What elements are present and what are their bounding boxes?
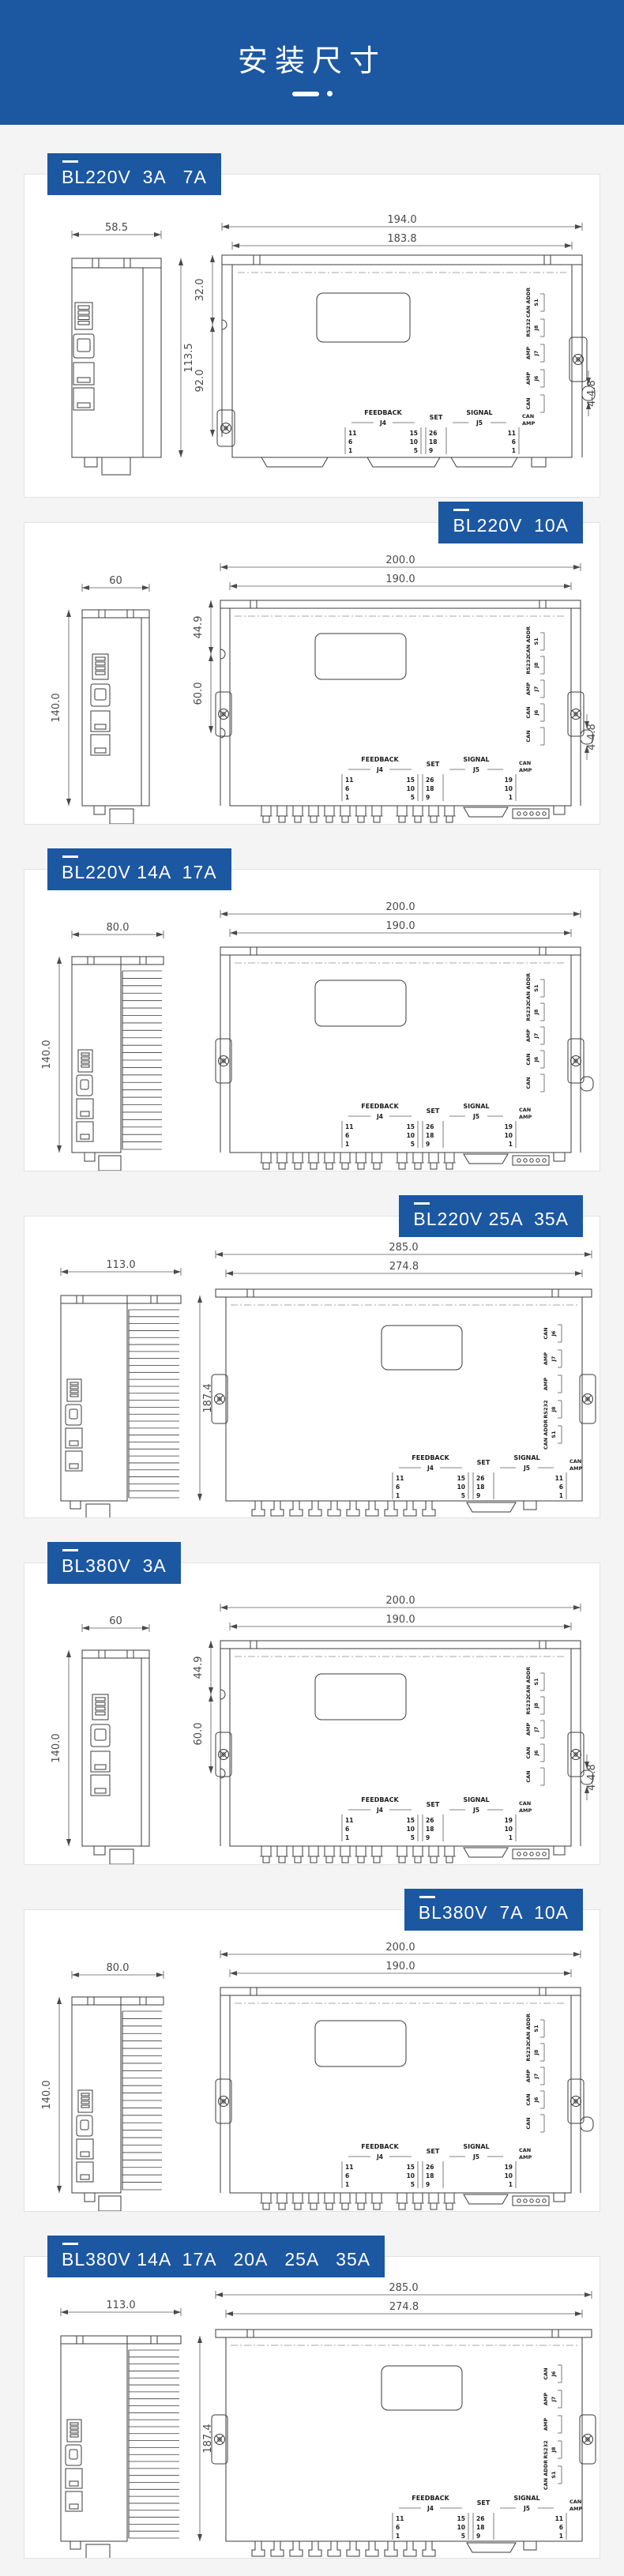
pin-number: 11: [396, 2515, 404, 2522]
port-label: RS232: [525, 1002, 532, 1021]
pin-number: 6: [345, 2172, 349, 2179]
j5-label: J5: [472, 1807, 479, 1814]
product-section-3: BL220V 14A 17A80.0140.0200.0190.0CAN ADD…: [24, 848, 600, 1171]
dim-value: 60.0: [193, 683, 205, 705]
connector-port-icon: [66, 2445, 81, 2465]
pin-number: 11: [348, 430, 356, 437]
j4-label: J4: [427, 1465, 434, 1472]
title-underline: [0, 91, 624, 96]
set-label: SET: [427, 1801, 440, 1808]
screw-icon: [571, 709, 581, 720]
pin-number: 15: [407, 1817, 415, 1824]
dim-value: 200.0: [385, 1942, 415, 1954]
section-label-text: BL220V 10A: [453, 515, 569, 536]
pin-number: 1: [509, 794, 513, 801]
dsub-connector-icon: [464, 2194, 508, 2204]
amp-label: AMP: [522, 420, 535, 427]
port-label: J8: [551, 1406, 557, 1412]
technical-drawing: 113.0187.4285.0274.8CANJ6AMPJ7AMPRS232J8…: [24, 2257, 600, 2558]
section-label-text: BL220V 3A 7A: [62, 167, 207, 187]
product-section-5: BL380V 3A60140.0200.0190.044.960.04-4.8C…: [24, 1542, 600, 1865]
port-label: S1: [533, 1678, 539, 1686]
port-label: CAN ADDR: [525, 2014, 532, 2044]
port-label: CAN ADDR: [525, 626, 532, 656]
dim-vertical: 60.0: [193, 654, 213, 733]
pin-number: 11: [345, 2164, 353, 2171]
dim-value: 190.0: [385, 1614, 415, 1626]
can-label: CAN: [519, 1107, 531, 1113]
pin-number: 9: [476, 1492, 480, 1499]
port-label: CAN: [525, 397, 532, 409]
pin-number: 11: [555, 1475, 563, 1482]
port-label: J6: [533, 375, 539, 382]
pin-number: 10: [457, 2524, 465, 2531]
set-label: SET: [477, 2499, 491, 2506]
rj45-port-icon: [91, 735, 110, 755]
j4-label: J4: [376, 2153, 383, 2160]
dim-value: 190.0: [385, 920, 415, 932]
sections-container: BL220V 3A 7A58.5113.5194.0183.832.092.04…: [0, 153, 624, 2559]
pin-number: 1: [509, 1141, 513, 1148]
drawing-card: 58.5113.5194.0183.832.092.04-4.8CAN ADDR…: [24, 174, 600, 498]
drawing-card: 60140.0200.0190.044.960.04-4.8CAN ADDRS1…: [24, 1563, 600, 1865]
port-label: RS232: [525, 318, 532, 337]
connector-port-icon: [77, 1075, 92, 1096]
dip-switch-icon: [78, 1050, 92, 1072]
pin-number: 1: [345, 794, 349, 801]
dim-value: 60.0: [193, 1723, 205, 1746]
signal-label: SIGNAL: [463, 756, 489, 763]
rj45-port-icon: [91, 1751, 110, 1772]
screw-icon: [571, 1750, 581, 1760]
j4-label: J4: [376, 766, 383, 773]
label-dash-icon: [62, 160, 78, 163]
drawing-card: 113.0187.4285.0274.8CANJ6AMPJ7AMPRS232J8…: [24, 1216, 600, 1518]
port-label: AMP: [543, 1352, 549, 1365]
j4-label: J4: [379, 419, 386, 427]
pin-number: 1: [559, 2533, 563, 2540]
pin-number: 11: [345, 1817, 353, 1824]
pin-number: 6: [345, 1132, 349, 1139]
title-underline-dash-icon: [292, 92, 319, 96]
port-label: S1: [551, 2471, 557, 2479]
port-labels: CAN ADDRS1RS232J8AMPJ7CANJ6CAN: [525, 626, 544, 745]
dim-horizontal: 80.0: [72, 1962, 164, 1979]
port-label: S1: [533, 2025, 539, 2033]
port-label: J7: [533, 351, 539, 357]
port-label: CAN: [543, 2367, 549, 2379]
feedback-label: FEEDBACK: [361, 2143, 399, 2150]
pin-number: 18: [426, 785, 434, 792]
dim-value: 285.0: [389, 2282, 418, 2294]
dim-value: 194.0: [387, 214, 416, 226]
pin-number: 10: [505, 785, 513, 792]
port-label: J7: [533, 1727, 539, 1733]
port-label: RS232: [525, 2043, 532, 2061]
pin-number: 26: [476, 2515, 484, 2522]
dim-value: 140.0: [51, 693, 62, 722]
dim-vertical: 92.0: [194, 325, 215, 437]
dim-horizontal: 190.0: [230, 573, 571, 590]
dip-switch-icon: [67, 1379, 81, 1401]
pin-number: 26: [426, 777, 434, 784]
pin-number: 1: [396, 1492, 400, 1499]
feedback-label: FEEDBACK: [361, 1796, 399, 1803]
pin-number: 6: [512, 438, 516, 446]
dim-value: 187.4: [202, 1383, 214, 1412]
port-label: CAN ADDR: [543, 1420, 549, 1450]
dim-value: 4-4.8: [586, 1764, 598, 1791]
pin-number: 1: [509, 1834, 513, 1841]
pin-number: 6: [559, 2524, 563, 2531]
amp-label: AMP: [569, 1465, 582, 1472]
port-label: CAN: [525, 706, 532, 718]
dip-switch-icon: [92, 654, 108, 679]
connector-port-icon: [91, 1724, 110, 1747]
port-labels: CANJ6AMPJ7AMPRS232J8CAN ADDRS1: [543, 1325, 562, 1450]
j4-label: J4: [376, 1113, 383, 1120]
technical-drawing: 58.5113.5194.0183.832.092.04-4.8CAN ADDR…: [24, 175, 600, 497]
port-label: J6: [551, 1330, 557, 1337]
dim-horizontal: 285.0: [216, 1242, 592, 1258]
dim-horizontal: 200.0: [220, 1942, 581, 1958]
screw-icon: [215, 1394, 225, 1405]
port-label: AMP: [525, 347, 532, 359]
dsub-connector-icon: [261, 457, 328, 467]
section-label: BL380V 14A 17A 20A 25A 35A: [47, 2236, 385, 2277]
dim-horizontal: 190.0: [230, 920, 571, 937]
connector-port-icon: [73, 334, 94, 358]
dim-value: 183.8: [387, 233, 416, 245]
amp-label: AMP: [519, 767, 532, 773]
section-label: BL220V 10A: [438, 502, 583, 543]
dim-value: 285.0: [389, 1242, 418, 1254]
dim-horizontal: 285.0: [216, 2282, 592, 2299]
signal-label: SIGNAL: [463, 1103, 489, 1110]
dim-value: 113.0: [106, 2300, 135, 2311]
pin-number: 6: [345, 1826, 349, 1833]
port-label: CAN: [525, 1747, 532, 1758]
rj45-port-icon: [77, 1099, 93, 1119]
dim-horizontal: 113.0: [61, 2300, 181, 2316]
connector-strip-icon: [513, 1156, 549, 1165]
port-label: CAN: [525, 730, 532, 742]
dim-value: 140.0: [41, 2080, 53, 2109]
label-dash-icon: [453, 509, 469, 511]
port-label: J7: [533, 686, 539, 693]
can-label: CAN: [569, 1458, 581, 1465]
pin-number: 18: [476, 1484, 484, 1491]
connector-pin-table: FEEDBACKJ4111561015SET26189SIGNALJ519101…: [342, 756, 532, 801]
connector-port-icon: [77, 2115, 92, 2136]
pin-number: 18: [429, 438, 437, 446]
dim-horizontal: 274.8: [226, 2301, 582, 2318]
pin-number: 18: [476, 2524, 484, 2531]
dim-value: 92.0: [194, 370, 206, 393]
technical-drawing: 60140.0200.0190.044.960.04-4.8CAN ADDRS1…: [24, 523, 600, 824]
heatsink-fins-icon: [129, 2350, 179, 2538]
screw-icon: [215, 2435, 225, 2445]
pin-number: 15: [407, 777, 415, 784]
terminal-block-icon: [396, 1846, 456, 1863]
amp-label: AMP: [519, 1114, 532, 1120]
pin-number: 1: [345, 2181, 349, 2188]
dim-horizontal: 80.0: [72, 922, 164, 938]
dip-switch-icon: [78, 2090, 92, 2112]
dim-value: 274.8: [389, 2301, 419, 2313]
amp-label: AMP: [519, 2154, 532, 2160]
dim-vertical: 44.9: [193, 1641, 213, 1694]
dim-value: 113.5: [183, 343, 195, 372]
pin-number: 19: [505, 1817, 513, 1824]
port-label: CAN ADDR: [525, 288, 532, 318]
dim-value: 4-4.8: [586, 380, 598, 407]
pin-number: 11: [508, 430, 516, 437]
set-label: SET: [427, 761, 440, 768]
pin-number: 9: [426, 1834, 430, 1841]
technical-drawing: 80.0140.0200.0190.0CAN ADDRS1RS232J8AMPJ…: [24, 1910, 600, 2211]
connector-pin-table: FEEDBACKJ4111561015SET26189SIGNALJ51161C…: [393, 1454, 582, 1499]
pin-number: 15: [407, 1123, 415, 1130]
screw-icon: [219, 1056, 229, 1066]
screw-icon: [583, 1394, 593, 1405]
screw-icon: [571, 2097, 581, 2107]
rj45-port-icon: [66, 2491, 82, 2511]
feedback-label: FEEDBACK: [361, 756, 399, 763]
pin-number: 19: [505, 2164, 513, 2171]
pin-number: 11: [345, 777, 353, 784]
pin-number: 1: [509, 2181, 513, 2188]
dim-horizontal: 200.0: [220, 1595, 581, 1611]
port-label: AMP: [543, 1378, 549, 1390]
can-label: CAN: [519, 1800, 531, 1807]
screw-icon: [219, 709, 229, 720]
dim-value: 200.0: [385, 555, 415, 566]
dim-value: 58.5: [105, 222, 128, 234]
amp-label: AMP: [519, 1807, 532, 1814]
dim-vertical: 32.0: [194, 255, 215, 325]
pin-number: 11: [555, 2515, 563, 2522]
can-label: CAN: [519, 2147, 531, 2153]
terminal-block-icon: [260, 2193, 383, 2209]
product-section-6: BL380V 7A 10A80.0140.0200.0190.0CAN ADDR…: [24, 1889, 600, 2212]
pin-number: 18: [426, 2172, 434, 2179]
label-dash-icon: [419, 1896, 435, 1898]
set-label: SET: [427, 1107, 440, 1115]
port-label: J8: [533, 1009, 539, 1015]
connector-pin-table: FEEDBACKJ4111561015SET26189SIGNALJ519101…: [342, 2143, 532, 2188]
j5-label: J5: [472, 2153, 479, 2160]
label-dash-icon: [62, 1549, 78, 1551]
dim-value: 44.9: [193, 616, 205, 639]
pin-number: 1: [559, 1492, 563, 1499]
dim-vertical: 60.0: [193, 1694, 213, 1773]
port-label: AMP: [543, 2418, 549, 2431]
pin-number: 5: [411, 794, 415, 801]
port-label: J6: [533, 2097, 539, 2103]
section-label-text: BL220V 14A 17A: [62, 862, 217, 882]
pin-number: 5: [461, 2533, 465, 2540]
dim-horizontal: 58.5: [72, 222, 161, 239]
dip-switch-icon: [75, 303, 92, 329]
section-label: BL220V 14A 17A: [47, 848, 231, 890]
dim-value: 140.0: [41, 1040, 53, 1069]
label-dash-icon: [62, 856, 78, 858]
port-label: S1: [533, 637, 539, 645]
screw-icon: [219, 2097, 229, 2107]
set-label: SET: [430, 414, 443, 421]
set-label: SET: [427, 2148, 440, 2155]
j4-label: J4: [376, 1807, 383, 1814]
section-label-text: BL220V 25A 35A: [413, 1209, 569, 1229]
pin-number: 19: [505, 777, 513, 784]
port-label: AMP: [525, 1029, 532, 1042]
pin-number: 6: [348, 438, 352, 446]
pin-number: 6: [559, 1484, 563, 1491]
product-section-1: BL220V 3A 7A58.5113.5194.0183.832.092.04…: [24, 153, 600, 498]
label-dash-icon: [414, 1202, 430, 1205]
pin-number: 1: [345, 1141, 349, 1148]
pin-number: 5: [411, 1834, 415, 1841]
connector-port-icon: [66, 1405, 81, 1425]
port-label: J6: [533, 709, 539, 716]
rj45-port-icon: [77, 2162, 93, 2182]
signal-label: SIGNAL: [513, 2495, 539, 2502]
port-label: J6: [533, 1056, 539, 1062]
pin-number: 11: [345, 1123, 353, 1130]
dsub-connector-icon: [467, 1502, 516, 1512]
screw-icon: [571, 1056, 581, 1066]
port-label: J8: [533, 1702, 539, 1709]
terminal-block-icon: [396, 2193, 456, 2209]
rj45-port-icon: [91, 711, 110, 731]
dim-vertical: 140.0: [41, 957, 62, 1153]
pin-number: 5: [411, 2181, 415, 2188]
page-title: 安装尺寸: [0, 0, 624, 80]
dim-value: 80.0: [107, 1962, 130, 1974]
dim-horizontal: 60: [82, 575, 149, 592]
pin-number: 9: [426, 2181, 430, 2188]
port-label: J8: [533, 662, 539, 668]
port-labels: CAN ADDRS1RS232J8AMPJ7AMPJ6CAN: [525, 288, 544, 412]
rj45-port-icon: [66, 1428, 82, 1448]
drawing-card: 80.0140.0200.0190.0CAN ADDRS1RS232J8AMPJ…: [24, 869, 600, 1171]
connector-port-icon: [91, 684, 110, 706]
technical-drawing: 60140.0200.0190.044.960.04-4.8CAN ADDRS1…: [24, 1563, 600, 1864]
port-label: J6: [533, 1750, 539, 1756]
pin-number: 1: [396, 2533, 400, 2540]
port-label: RS232: [543, 2440, 549, 2458]
section-label: BL220V 3A 7A: [47, 153, 221, 195]
dim-value: 140.0: [51, 1733, 62, 1762]
port-label: RS232: [543, 1400, 549, 1418]
drawing-card: 80.0140.0200.0190.0CAN ADDRS1RS232J8AMPJ…: [24, 1909, 600, 2212]
signal-label: SIGNAL: [513, 1454, 539, 1461]
port-label: AMP: [543, 2393, 549, 2405]
port-label: J8: [551, 2446, 557, 2453]
port-label: AMP: [525, 1723, 532, 1736]
j5-label: J5: [523, 2505, 530, 2512]
dim-vertical: 140.0: [41, 1997, 62, 2193]
heatsink-fins-icon: [122, 2011, 162, 2190]
signal-label: SIGNAL: [466, 409, 492, 416]
port-labels: CANJ6AMPJ7AMPRS232J8CAN ADDRS1: [543, 2365, 562, 2490]
section-label: BL220V 25A 35A: [399, 1195, 583, 1237]
connector-pin-table: FEEDBACKJ4111561015SET26189SIGNALJ51161C…: [345, 409, 535, 454]
feedback-label: FEEDBACK: [364, 409, 402, 416]
rj45-port-icon: [77, 1122, 93, 1141]
rj45-port-icon: [66, 1451, 82, 1471]
dim-vertical: 113.5: [179, 258, 195, 457]
pin-number: 9: [426, 1141, 430, 1148]
pin-number: 5: [414, 447, 418, 454]
feedback-label: FEEDBACK: [412, 2495, 449, 2502]
rj45-port-icon: [91, 1775, 110, 1796]
j5-label: J5: [472, 1113, 479, 1120]
pin-number: 26: [426, 1817, 434, 1824]
dim-value: 4-4.8: [586, 724, 598, 750]
dim-value: 113.0: [106, 1259, 135, 1271]
port-label: J6: [551, 2371, 557, 2377]
pin-number: 9: [429, 447, 433, 454]
terminal-block-icon: [396, 1153, 456, 1169]
pin-number: 1: [345, 1834, 349, 1841]
dim-value: 44.9: [193, 1657, 205, 1679]
section-label: BL380V 7A 10A: [404, 1889, 583, 1931]
port-label: J7: [533, 2074, 539, 2080]
product-section-2: BL220V 10A60140.0200.0190.044.960.04-4.8…: [24, 502, 600, 825]
feedback-label: FEEDBACK: [361, 1103, 399, 1110]
section-label-text: BL380V 14A 17A 20A 25A 35A: [62, 2249, 370, 2270]
pin-number: 5: [411, 1141, 415, 1148]
port-label: CAN: [525, 2093, 532, 2105]
pin-number: 19: [505, 1123, 513, 1130]
pin-number: 9: [426, 794, 430, 801]
port-label: S1: [551, 1431, 557, 1438]
drawing-card: 113.0187.4285.0274.8CANJ6AMPJ7AMPRS232J8…: [24, 2256, 600, 2559]
pin-number: 10: [407, 1132, 415, 1139]
pin-number: 10: [407, 1826, 415, 1833]
dim-value: 80.0: [107, 922, 130, 934]
pin-number: 15: [457, 1475, 465, 1482]
dip-switch-icon: [92, 1694, 108, 1720]
dsub-connector-icon: [367, 457, 440, 467]
section-label: BL380V 3A: [47, 1542, 181, 1584]
product-section-4: BL220V 25A 35A113.0187.4285.0274.8CANJ6A…: [24, 1195, 600, 1518]
port-label: RS232: [525, 1696, 532, 1714]
heatsink-fins-icon: [122, 971, 162, 1149]
dim-value: 200.0: [385, 901, 415, 913]
port-label: J7: [533, 1033, 539, 1040]
pin-number: 26: [426, 1123, 434, 1130]
pin-number: 10: [505, 1132, 513, 1139]
rj45-port-icon: [73, 363, 94, 385]
drawing-card: 60140.0200.0190.044.960.04-4.8CAN ADDRS1…: [24, 522, 600, 825]
dim-vertical: 140.0: [51, 1650, 71, 1846]
pin-number: 10: [505, 1826, 513, 1833]
j5-label: J5: [472, 766, 479, 773]
j5-label: J5: [476, 419, 483, 427]
technical-drawing: 80.0140.0200.0190.0CAN ADDRS1RS232J8AMPJ…: [24, 870, 600, 1171]
port-labels: CAN ADDRS1RS232J8AMPJ7CANJ6CAN: [525, 973, 544, 1092]
pin-number: 10: [410, 438, 418, 446]
connector-pin-table: FEEDBACKJ4111561015SET26189SIGNALJ51161C…: [393, 2495, 582, 2540]
pin-number: 6: [396, 1484, 400, 1491]
set-label: SET: [477, 1459, 491, 1466]
pin-number: 10: [407, 2172, 415, 2179]
pin-number: 10: [505, 2172, 513, 2179]
dim-horizontal: 60: [82, 1615, 149, 1632]
